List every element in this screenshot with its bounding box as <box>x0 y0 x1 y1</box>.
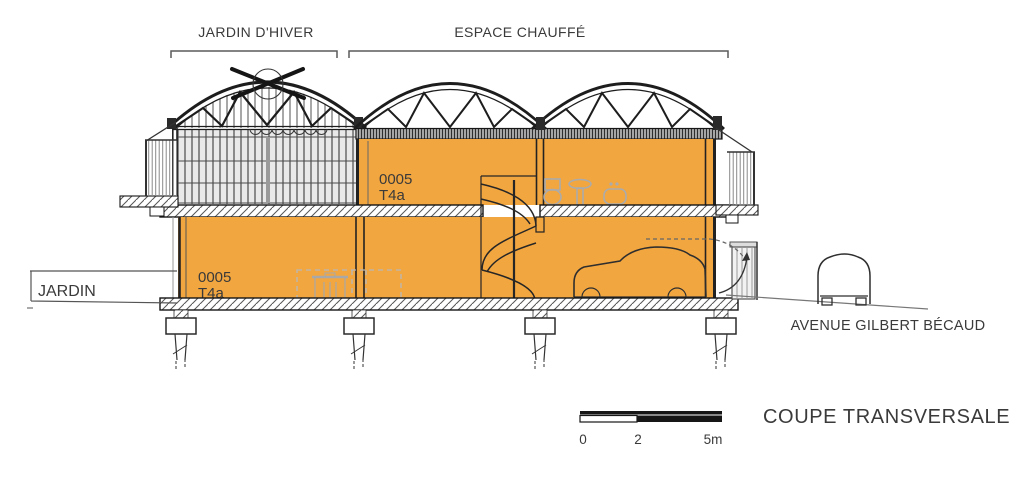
scale-segment-black <box>637 416 722 423</box>
basin-tap-dot <box>615 182 618 185</box>
upper-floor: 0005 T4a <box>356 139 716 205</box>
garden-label: JARDIN <box>38 283 96 300</box>
railing-slats <box>146 140 177 196</box>
ground-room-number: 0005 <box>198 269 231 286</box>
upper-room-number: 0005 <box>379 171 412 188</box>
door-lintel <box>730 242 757 247</box>
tie-rod <box>716 128 752 152</box>
winter-garden-label: JARDIN D'HIVER <box>198 24 314 40</box>
scale-bar: 0 2 5m <box>579 411 722 447</box>
arch2-outer <box>532 84 724 130</box>
heated-space-bracket <box>349 51 728 58</box>
railing-slats <box>728 152 754 205</box>
scale-tick-0: 0 <box>579 432 587 447</box>
foundations <box>166 310 736 370</box>
heated-space-label: ESPACE CHAUFFÉ <box>454 24 585 40</box>
arch-mid-post <box>536 117 545 130</box>
arch1-outer <box>354 84 546 130</box>
tie-rod <box>146 122 176 141</box>
balcony-edge-right <box>726 215 738 223</box>
roof-slab-band <box>356 129 722 140</box>
balcony-slab-right <box>716 205 758 215</box>
ground-room-fill <box>178 217 715 298</box>
slab-ground <box>160 298 738 310</box>
winter-garden-section <box>167 69 366 205</box>
eave-post-right <box>713 116 722 130</box>
scale-top-bar <box>580 411 722 415</box>
scale-tick-2: 2 <box>634 432 642 447</box>
street-label: AVENUE GILBERT BÉCAUD <box>791 317 986 334</box>
arch2-truss-web <box>540 93 716 127</box>
section-drawing: JARDIN D'HIVER ESPACE CHAUFFÉ <box>0 0 1024 478</box>
arch1-truss-web <box>362 93 538 127</box>
ground-floor: 0005 T4a <box>173 217 715 302</box>
street-side: AVENUE GILBERT BÉCAUD <box>726 254 985 334</box>
scale-segment-white <box>580 416 637 423</box>
center-post <box>266 137 270 203</box>
slab-right <box>540 205 734 217</box>
balcony-edge-left <box>150 207 164 216</box>
balcony-slab-left <box>120 196 178 207</box>
street-ground-line <box>726 295 928 309</box>
garden-strip: JARDIN <box>27 271 177 308</box>
scale-tick-5m: 5m <box>704 432 723 447</box>
basin-tap-dot <box>609 182 612 185</box>
upper-room-type: T4a <box>379 187 406 204</box>
drawing-title: COUPE TRANSVERSALE <box>763 406 1010 428</box>
foundation-pile <box>706 310 736 370</box>
downstand-beam <box>536 217 544 232</box>
heated-roof <box>354 84 724 140</box>
foundation-pile <box>166 310 196 370</box>
foundation-pile <box>344 310 374 370</box>
slab-left <box>160 205 483 217</box>
foundation-pile <box>525 310 555 370</box>
top-annotations: JARDIN D'HIVER ESPACE CHAUFFÉ <box>171 24 728 58</box>
ground-slab <box>160 298 738 310</box>
winter-garden-bracket <box>171 51 337 58</box>
dome-glazing <box>176 82 358 128</box>
street-car <box>818 254 870 305</box>
